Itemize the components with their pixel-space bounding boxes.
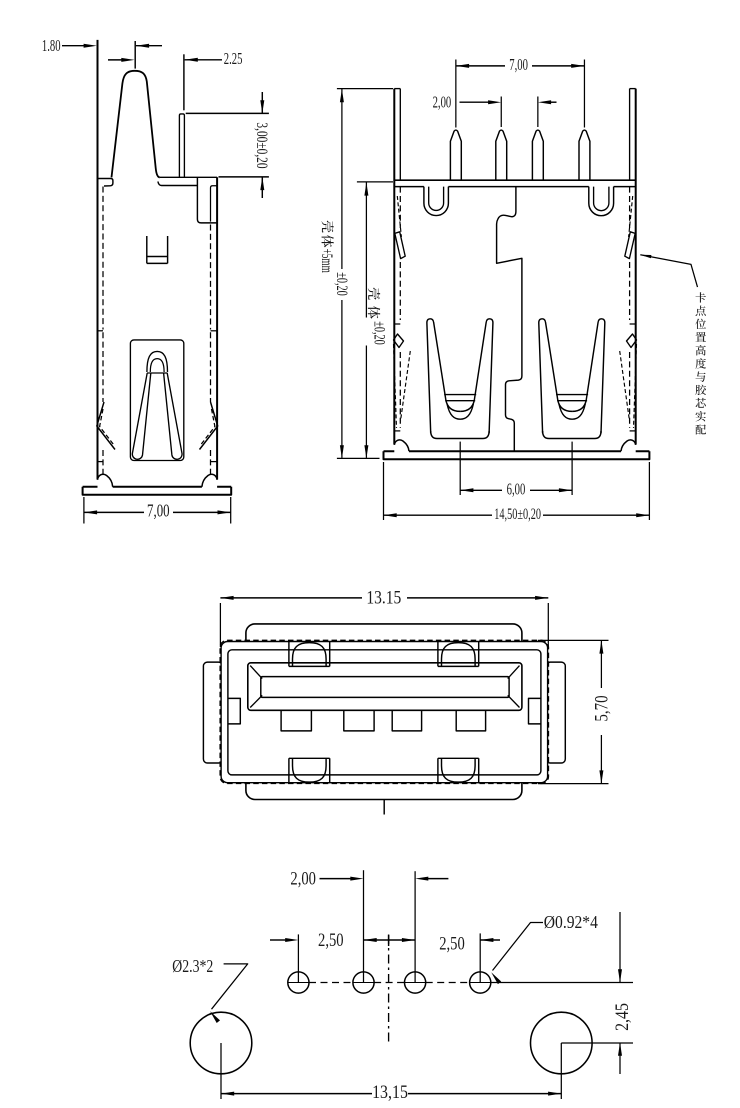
svg-text:±0,20: ±0,20 [371, 321, 389, 345]
svg-text:2,50: 2,50 [318, 929, 344, 950]
svg-text:7,00: 7,00 [509, 56, 528, 75]
svg-text:+5mm: +5mm [318, 249, 335, 273]
svg-text:13,15: 13,15 [372, 1082, 408, 1102]
svg-text:2,45: 2,45 [612, 1003, 632, 1031]
svg-text:Ø0.92*4: Ø0.92*4 [544, 912, 599, 932]
svg-text:6,00: 6,00 [507, 480, 526, 499]
svg-text:7,00: 7,00 [147, 502, 170, 522]
svg-text:2,50: 2,50 [439, 933, 465, 954]
svg-text:±0,20: ±0,20 [333, 272, 351, 296]
svg-text:5,70: 5,70 [591, 695, 612, 721]
svg-text:2,00: 2,00 [433, 93, 452, 112]
svg-text:13.15: 13.15 [366, 587, 401, 608]
svg-text:2.25: 2.25 [224, 50, 243, 69]
svg-text:3,00±0,20: 3,00±0,20 [253, 122, 270, 168]
svg-text:14,50±0,20: 14,50±0,20 [494, 505, 541, 523]
svg-text:Ø2.3*2: Ø2.3*2 [172, 957, 213, 976]
svg-text:1.80: 1.80 [42, 37, 61, 56]
svg-text:2,00: 2,00 [290, 868, 316, 889]
